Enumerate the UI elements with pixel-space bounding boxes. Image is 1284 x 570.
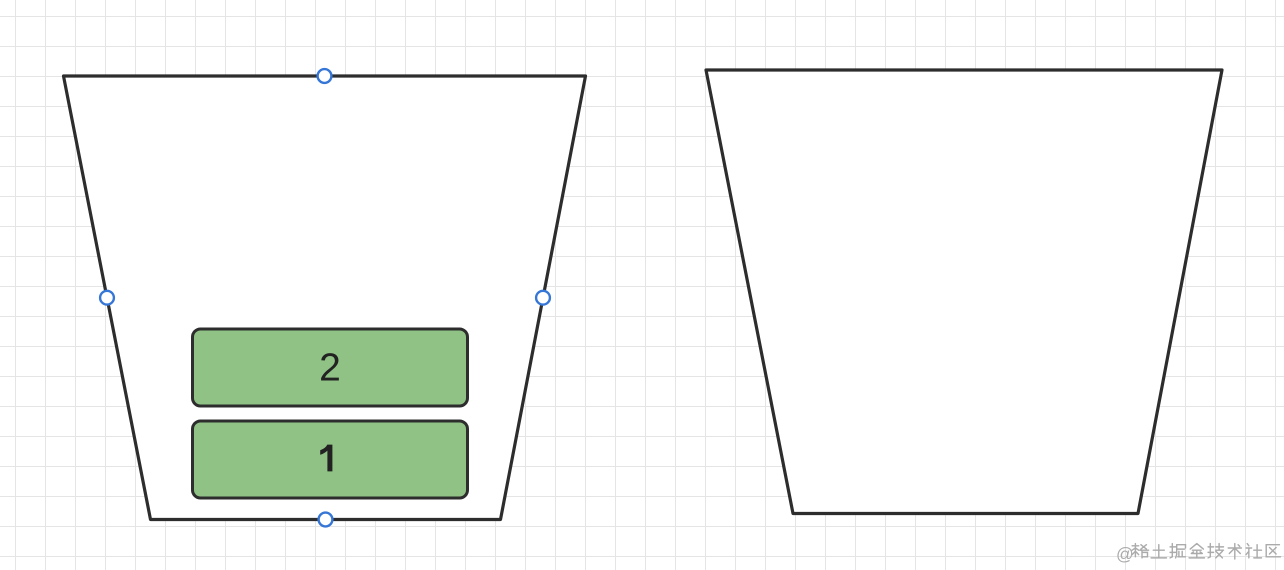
svg-text:@: @ bbox=[1116, 544, 1134, 564]
svg-text:2: 2 bbox=[319, 347, 341, 390]
